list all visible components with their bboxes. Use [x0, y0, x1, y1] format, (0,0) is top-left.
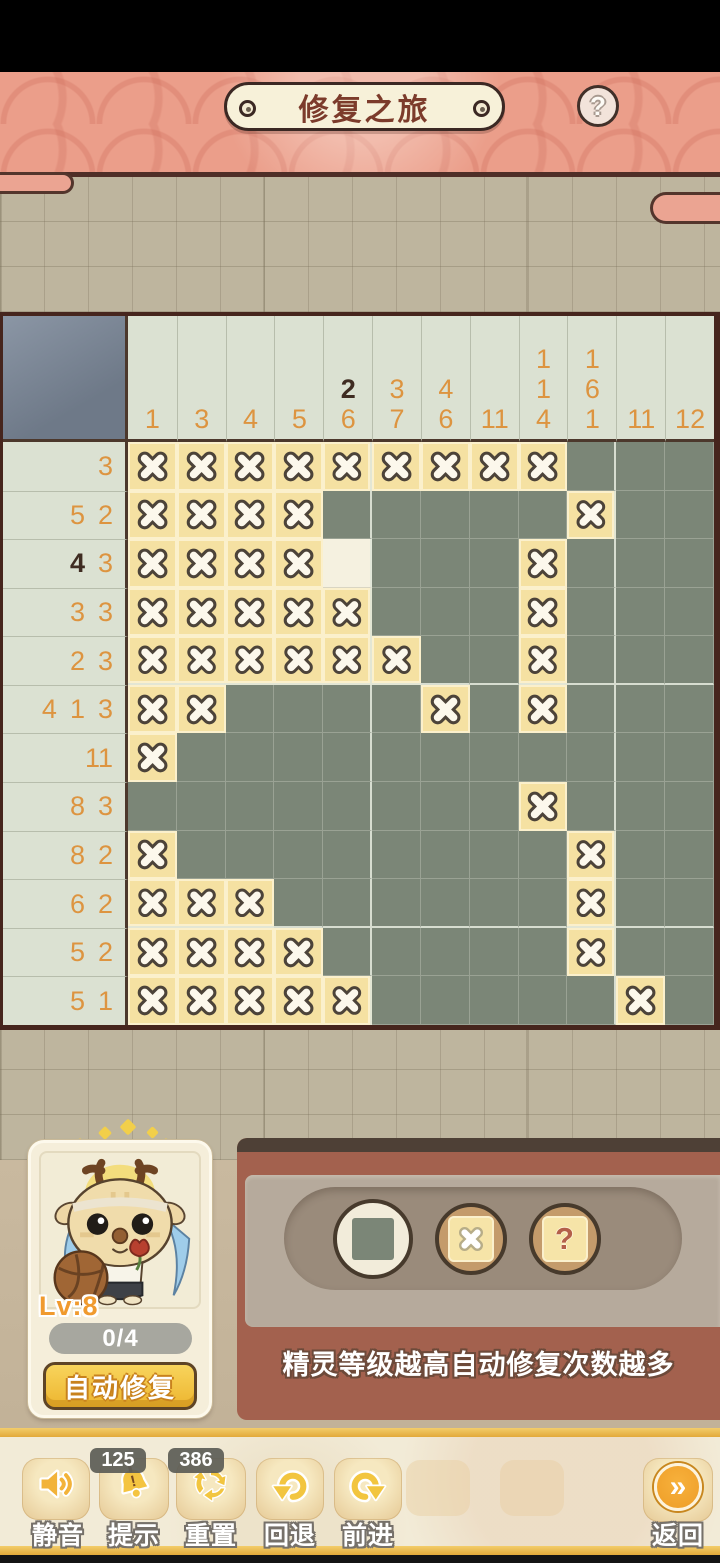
grid-cell[interactable] [470, 442, 519, 491]
grid-cell[interactable] [567, 442, 616, 491]
wallpaper-top [0, 177, 720, 312]
toolbar-gold-stripe-top [0, 1428, 720, 1437]
grid-cell[interactable] [567, 539, 616, 588]
grid-cell[interactable] [177, 928, 226, 977]
grid-cell[interactable] [226, 588, 275, 637]
grid-cell[interactable] [226, 636, 275, 685]
grid-cell[interactable] [567, 685, 616, 734]
grid-cell[interactable] [470, 782, 519, 831]
redo-label: 前进 [320, 1516, 416, 1552]
row-hint: 43 [3, 539, 128, 588]
grid-cell[interactable] [616, 685, 665, 734]
grid-cell[interactable] [226, 491, 275, 540]
grid-cell[interactable] [372, 539, 421, 588]
grid-cell[interactable] [616, 879, 665, 928]
grid-cell[interactable] [323, 782, 372, 831]
grid-cell[interactable] [470, 685, 519, 734]
grid-cell[interactable] [665, 442, 714, 491]
grid-cell[interactable] [470, 491, 519, 540]
grid-cell[interactable] [128, 976, 177, 1025]
grid-cell[interactable] [372, 831, 421, 880]
row-hint: 11 [3, 733, 128, 782]
board: 1345263746111141611112352433323413118382… [0, 312, 720, 1030]
grid-cell[interactable] [177, 733, 226, 782]
row-hint: 3 [3, 442, 128, 491]
grid-cell[interactable] [226, 879, 275, 928]
grid-cell[interactable] [519, 636, 568, 685]
grid-cell[interactable] [616, 442, 665, 491]
undo-button[interactable] [256, 1458, 324, 1520]
grid-cell[interactable] [616, 782, 665, 831]
grid-cell[interactable] [519, 976, 568, 1025]
grid-cell[interactable] [372, 733, 421, 782]
grid-cell[interactable] [177, 831, 226, 880]
grid-cell[interactable] [226, 685, 275, 734]
column-hint: 3 [177, 316, 226, 442]
title-banner: 修复之旅 [224, 82, 505, 131]
hint-count-badge: 125 [90, 1448, 146, 1473]
grid-cell[interactable] [323, 928, 372, 977]
banner-rivet-right-icon [473, 100, 490, 117]
grid-cell[interactable] [177, 539, 226, 588]
grid-cell[interactable] [665, 685, 714, 734]
grid-cell[interactable] [177, 685, 226, 734]
grid-cell[interactable] [177, 588, 226, 637]
grid-cell[interactable] [274, 442, 323, 491]
redo-button[interactable] [334, 1458, 402, 1520]
grid-cell[interactable] [616, 588, 665, 637]
grid-cell[interactable] [519, 442, 568, 491]
grid-cell[interactable] [274, 733, 323, 782]
status-bar [0, 0, 720, 72]
grid-cell[interactable] [519, 879, 568, 928]
grid-cell[interactable] [519, 685, 568, 734]
question-mark-icon: ? [542, 1216, 588, 1262]
grid-cell[interactable] [519, 928, 568, 977]
grid-cell[interactable] [519, 831, 568, 880]
grid-cell[interactable] [177, 636, 226, 685]
grid-cell[interactable] [421, 442, 470, 491]
row-hint: 51 [3, 976, 128, 1025]
grid-cell[interactable] [177, 442, 226, 491]
grid-cell[interactable] [226, 976, 275, 1025]
grid-cell[interactable] [128, 879, 177, 928]
column-hint: 37 [372, 316, 421, 442]
tool-mark-unknown[interactable]: ? [529, 1203, 601, 1275]
grid-cell[interactable] [665, 831, 714, 880]
grid-cell[interactable] [665, 539, 714, 588]
grid-cell[interactable] [470, 831, 519, 880]
grid-cell[interactable] [128, 733, 177, 782]
grid-cell[interactable] [372, 491, 421, 540]
game-screen: 修复之旅 ? 134526374611114161111235243332341… [0, 0, 720, 1563]
grid-cell[interactable] [372, 685, 421, 734]
undo-arrow-icon [270, 1464, 310, 1504]
grid-cell[interactable] [567, 491, 616, 540]
grid-cell[interactable] [665, 636, 714, 685]
grid-cell[interactable] [665, 928, 714, 977]
grid-cell[interactable] [177, 976, 226, 1025]
back-button[interactable]: » [643, 1458, 713, 1522]
speaker-icon [36, 1464, 76, 1504]
grid-cell[interactable] [421, 733, 470, 782]
grid-cell[interactable] [421, 976, 470, 1025]
back-label: 返回 [630, 1516, 720, 1552]
grid-cell[interactable] [665, 879, 714, 928]
toolbar-empty-slot [500, 1460, 564, 1516]
grid-cell[interactable] [372, 976, 421, 1025]
grid-cell[interactable] [372, 442, 421, 491]
grid-cell[interactable] [274, 976, 323, 1025]
grid-cell[interactable] [226, 733, 275, 782]
grid-cell[interactable] [372, 636, 421, 685]
grid-cell[interactable] [177, 491, 226, 540]
grid-cell[interactable] [226, 442, 275, 491]
grid-cell[interactable] [470, 928, 519, 977]
reset-count-badge: 386 [168, 1448, 224, 1473]
auto-repair-button[interactable]: 自动修复 [43, 1362, 197, 1410]
grid-cell[interactable] [665, 782, 714, 831]
auto-repair-counter: 0/4 [49, 1323, 192, 1354]
row-hint: 33 [3, 588, 128, 637]
grid-cell[interactable] [421, 491, 470, 540]
grid-cell[interactable] [323, 831, 372, 880]
tool-panel: ? 精灵等级越高自动修复次数越多 [237, 1138, 720, 1420]
grid-cell[interactable] [226, 928, 275, 977]
tool-selector-area: ? [245, 1175, 720, 1327]
row-hint: 52 [3, 928, 128, 977]
grid-cell[interactable] [128, 782, 177, 831]
grid-cell[interactable] [177, 879, 226, 928]
grid-cell[interactable] [421, 539, 470, 588]
grid-cell[interactable] [470, 588, 519, 637]
pet-card[interactable]: Lv:8 0/4 自动修复 [28, 1140, 212, 1418]
grid-cell[interactable] [567, 831, 616, 880]
column-hint: 161 [567, 316, 616, 442]
grid-cell[interactable] [519, 539, 568, 588]
grid-cell[interactable] [567, 588, 616, 637]
x-mark-icon [448, 1216, 494, 1262]
mute-button[interactable] [22, 1458, 90, 1520]
column-hint: 11 [616, 316, 665, 442]
grid-cell[interactable] [274, 782, 323, 831]
toolbar-empty-slot [406, 1460, 470, 1516]
grid-cell[interactable] [567, 782, 616, 831]
grid-cell[interactable] [567, 879, 616, 928]
pet-avatar [39, 1151, 201, 1309]
row-hint: 83 [3, 782, 128, 831]
column-hint: 12 [665, 316, 714, 442]
grid-cell[interactable] [323, 685, 372, 734]
grid-cell[interactable] [226, 539, 275, 588]
row-hint: 413 [3, 685, 128, 734]
grid-cell[interactable] [274, 539, 323, 588]
grid-cell[interactable] [128, 491, 177, 540]
grid-cell[interactable] [421, 831, 470, 880]
grid-cell[interactable] [372, 879, 421, 928]
grid-cell[interactable] [128, 539, 177, 588]
tool-tip-text: 精灵等级越高自动修复次数越多 [237, 1343, 720, 1382]
grid-cell[interactable] [421, 685, 470, 734]
redo-arrow-icon [348, 1464, 388, 1504]
grid-cell[interactable] [274, 491, 323, 540]
grid-cell[interactable] [372, 928, 421, 977]
grid-cell[interactable] [323, 539, 372, 588]
bottom-toolbar: 静音 ! 提示 125 重置 386 [0, 1428, 720, 1563]
grid-cell[interactable] [323, 491, 372, 540]
grid-cell[interactable] [616, 636, 665, 685]
decor-tab-left [0, 172, 74, 194]
grid-cell[interactable] [274, 879, 323, 928]
grid-cell[interactable] [616, 976, 665, 1025]
grid-cell[interactable] [323, 733, 372, 782]
grid-cell[interactable] [274, 928, 323, 977]
grid-cell[interactable] [567, 976, 616, 1025]
grid-cell[interactable] [128, 442, 177, 491]
grid-cell[interactable] [616, 733, 665, 782]
deer-character-icon [41, 1153, 199, 1307]
grid-cell[interactable] [519, 588, 568, 637]
grid-cell[interactable] [470, 733, 519, 782]
grid-cell[interactable] [372, 782, 421, 831]
grid-cell[interactable] [567, 928, 616, 977]
tool-mark-x[interactable] [435, 1203, 507, 1275]
grid-cell[interactable] [421, 928, 470, 977]
grid-cell[interactable] [128, 636, 177, 685]
grid-cell[interactable] [519, 782, 568, 831]
grid-cell[interactable] [226, 782, 275, 831]
page-title: 修复之旅 [299, 85, 431, 129]
grid-cell[interactable] [128, 928, 177, 977]
grid-cell[interactable] [274, 685, 323, 734]
grid-cell[interactable] [128, 685, 177, 734]
column-hint: 5 [274, 316, 323, 442]
tool-fill-selected[interactable] [333, 1199, 413, 1279]
grid-cell[interactable] [421, 636, 470, 685]
grid-cell[interactable] [177, 782, 226, 831]
grid-cell[interactable] [616, 491, 665, 540]
grid-cell[interactable] [274, 831, 323, 880]
fill-swatch-icon [352, 1218, 394, 1260]
row-hint: 82 [3, 831, 128, 880]
header: 修复之旅 ? [0, 72, 720, 177]
grid-cell[interactable] [421, 782, 470, 831]
grid-cell[interactable] [665, 491, 714, 540]
grid-cell[interactable] [323, 588, 372, 637]
column-hint: 11 [470, 316, 519, 442]
toolbar-black-strip [0, 1555, 720, 1563]
row-hint: 62 [3, 879, 128, 928]
row-hint: 52 [3, 491, 128, 540]
decor-tab-right [650, 192, 720, 224]
grid-cell[interactable] [567, 636, 616, 685]
grid-cell[interactable] [323, 976, 372, 1025]
panel-top-strip [237, 1138, 720, 1152]
grid-cell[interactable] [421, 879, 470, 928]
column-hint: 4 [226, 316, 275, 442]
grid-cell[interactable] [519, 733, 568, 782]
grid-cell[interactable] [421, 588, 470, 637]
column-hint: 1 [128, 316, 177, 442]
grid-cell[interactable] [616, 928, 665, 977]
grid-cell[interactable] [323, 442, 372, 491]
grid-cell[interactable] [665, 733, 714, 782]
back-chevrons-icon: » [654, 1463, 702, 1511]
grid-cell[interactable] [323, 879, 372, 928]
help-button[interactable]: ? [577, 85, 619, 127]
grid-cell[interactable] [567, 733, 616, 782]
grid-cell[interactable] [226, 831, 275, 880]
row-hint: 23 [3, 636, 128, 685]
pet-level-label: Lv:8 [39, 1291, 99, 1322]
grid-cell[interactable] [665, 588, 714, 637]
grid-cell[interactable] [274, 588, 323, 637]
grid-cell[interactable] [519, 491, 568, 540]
grid-cell[interactable] [665, 976, 714, 1025]
grid-cell[interactable] [616, 539, 665, 588]
grid-cell[interactable] [128, 588, 177, 637]
tool-pill: ? [284, 1187, 682, 1290]
grid-cell[interactable] [470, 879, 519, 928]
column-hint: 46 [421, 316, 470, 442]
grid-cell[interactable] [470, 976, 519, 1025]
board-corner [3, 316, 128, 442]
grid-cell[interactable] [470, 636, 519, 685]
grid-cell[interactable] [323, 636, 372, 685]
grid-cell[interactable] [470, 539, 519, 588]
banner-rivet-left-icon [239, 100, 256, 117]
column-hint: 114 [519, 316, 568, 442]
grid-cell[interactable] [128, 831, 177, 880]
grid-cell[interactable] [372, 588, 421, 637]
column-hint: 26 [323, 316, 372, 442]
grid-cell[interactable] [616, 831, 665, 880]
grid-cell[interactable] [274, 636, 323, 685]
